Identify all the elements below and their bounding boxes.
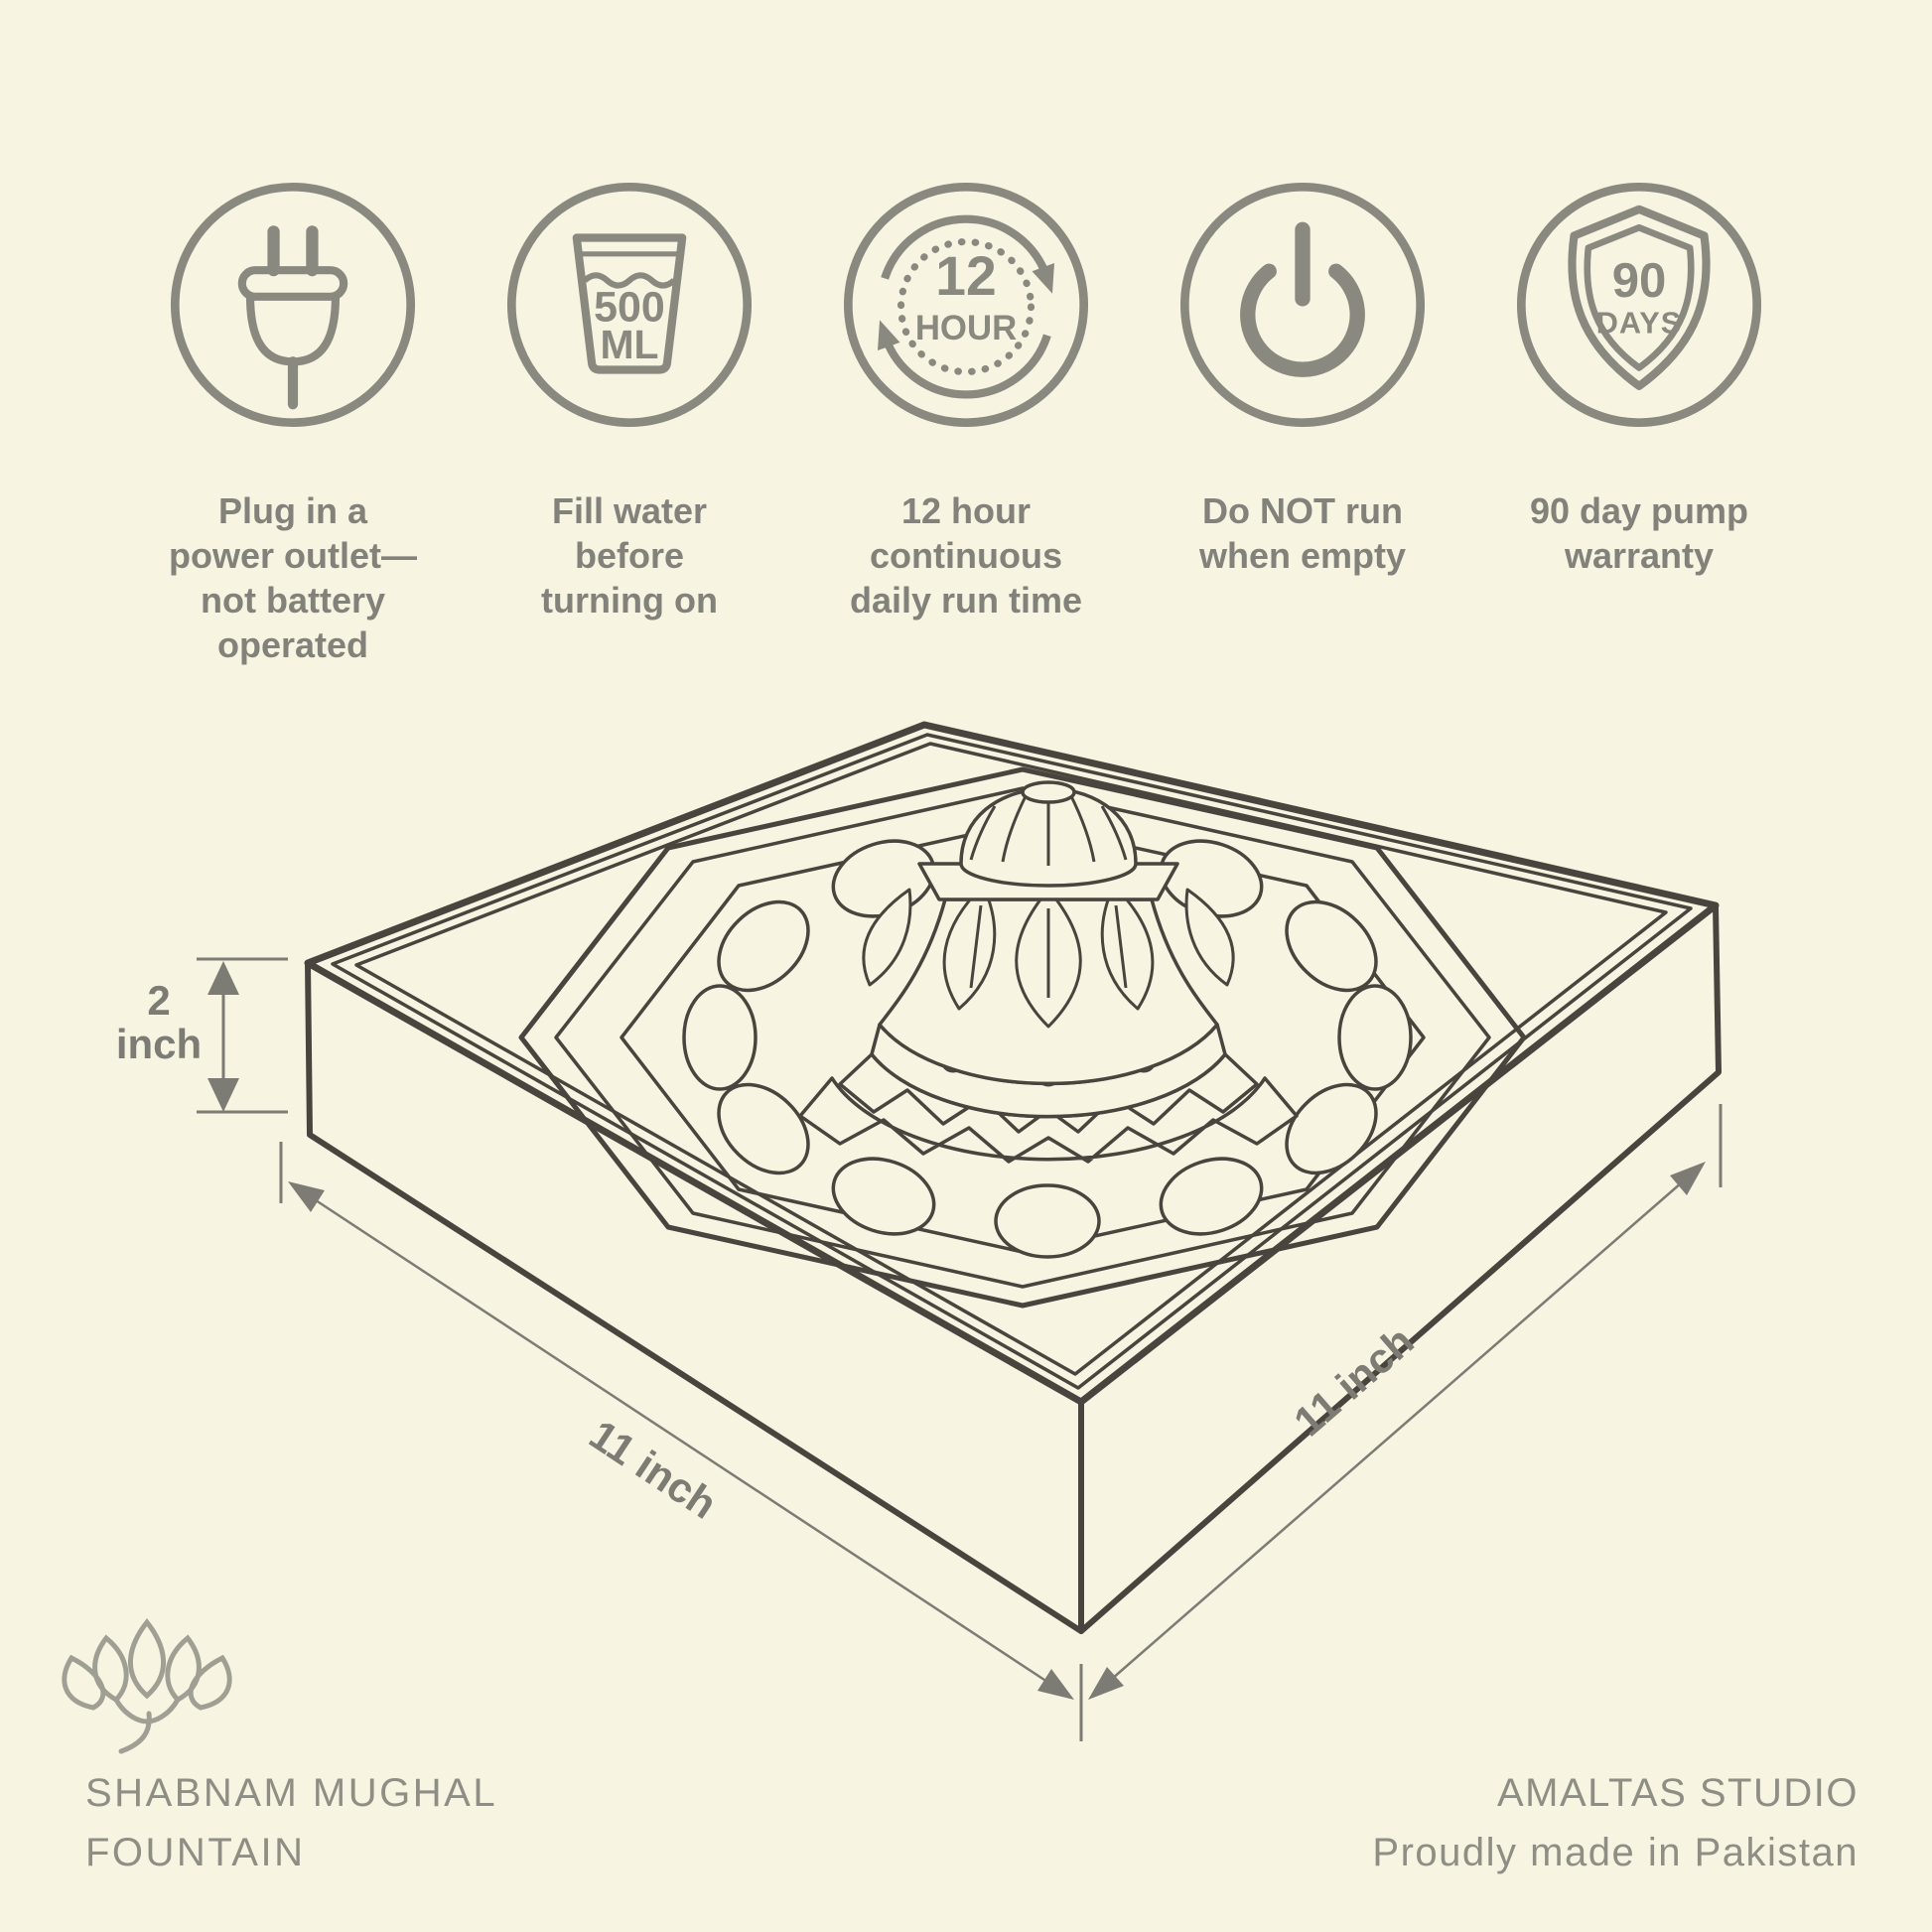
height-value-label: 2 xyxy=(147,977,170,1024)
brand-name-line2: FOUNTAIN xyxy=(85,1823,497,1882)
dimension-height: 2 inch xyxy=(116,959,288,1112)
infographic-page: Plug in a power outlet— not battery oper… xyxy=(0,0,1932,1932)
made-in-line: Proudly made in Pakistan xyxy=(1372,1823,1859,1882)
lotus-icon xyxy=(65,1622,229,1751)
height-unit-label: inch xyxy=(116,1021,202,1067)
width-label: 11 inch xyxy=(582,1411,726,1528)
studio-name: AMALTAS STUDIO xyxy=(1372,1763,1859,1823)
fountain-technical-drawing: 2 inch 11 inch 11 inch xyxy=(0,0,1932,1932)
brand-name-line1: SHABNAM MUGHAL xyxy=(85,1763,497,1823)
brand-left: SHABNAM MUGHAL FOUNTAIN xyxy=(85,1763,497,1882)
brand-right: AMALTAS STUDIO Proudly made in Pakistan xyxy=(1372,1763,1859,1882)
